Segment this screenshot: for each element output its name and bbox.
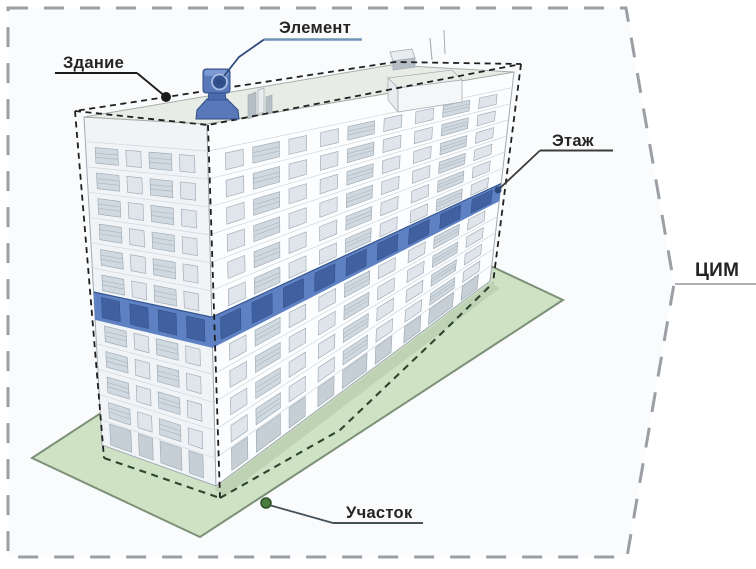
floor-label: Этаж [552, 132, 594, 150]
cim-label: ЦИМ [695, 260, 739, 281]
balcony [95, 148, 118, 166]
building-anchor-dot [161, 92, 171, 102]
window [132, 281, 147, 300]
floor-anchor-dot [495, 187, 502, 194]
element-label: Элемент [279, 19, 351, 37]
roof-vent [248, 92, 256, 119]
plot-label: Участок [346, 504, 413, 522]
window [130, 255, 145, 274]
floor-band-window [130, 304, 149, 329]
plot-anchor-dot [261, 498, 271, 508]
balcony [97, 173, 120, 191]
balcony [98, 199, 121, 218]
window [182, 237, 197, 256]
balcony [152, 232, 175, 252]
window [127, 176, 143, 194]
window [126, 150, 142, 167]
balcony [151, 205, 174, 224]
window [183, 264, 198, 283]
building-label: Здание [63, 54, 124, 72]
window [184, 291, 199, 311]
diagram-canvas: Здание Элемент Этаж Участок ЦИМ [0, 0, 756, 569]
roof-element-lens-core [217, 79, 223, 85]
balcony [150, 179, 173, 198]
floor-band-window [101, 298, 120, 322]
roof-vent [258, 88, 264, 114]
window [181, 209, 196, 228]
window [180, 182, 195, 200]
balcony [149, 152, 172, 170]
window [128, 203, 144, 221]
window [180, 155, 196, 173]
window [129, 229, 145, 247]
bim-structure-diagram: Здание Элемент Этаж Участок ЦИМ [0, 0, 756, 569]
balcony [99, 224, 122, 243]
roof-vent [266, 95, 272, 114]
floor-band-window [158, 310, 177, 335]
floor-band-window [186, 316, 205, 342]
window [186, 346, 201, 366]
